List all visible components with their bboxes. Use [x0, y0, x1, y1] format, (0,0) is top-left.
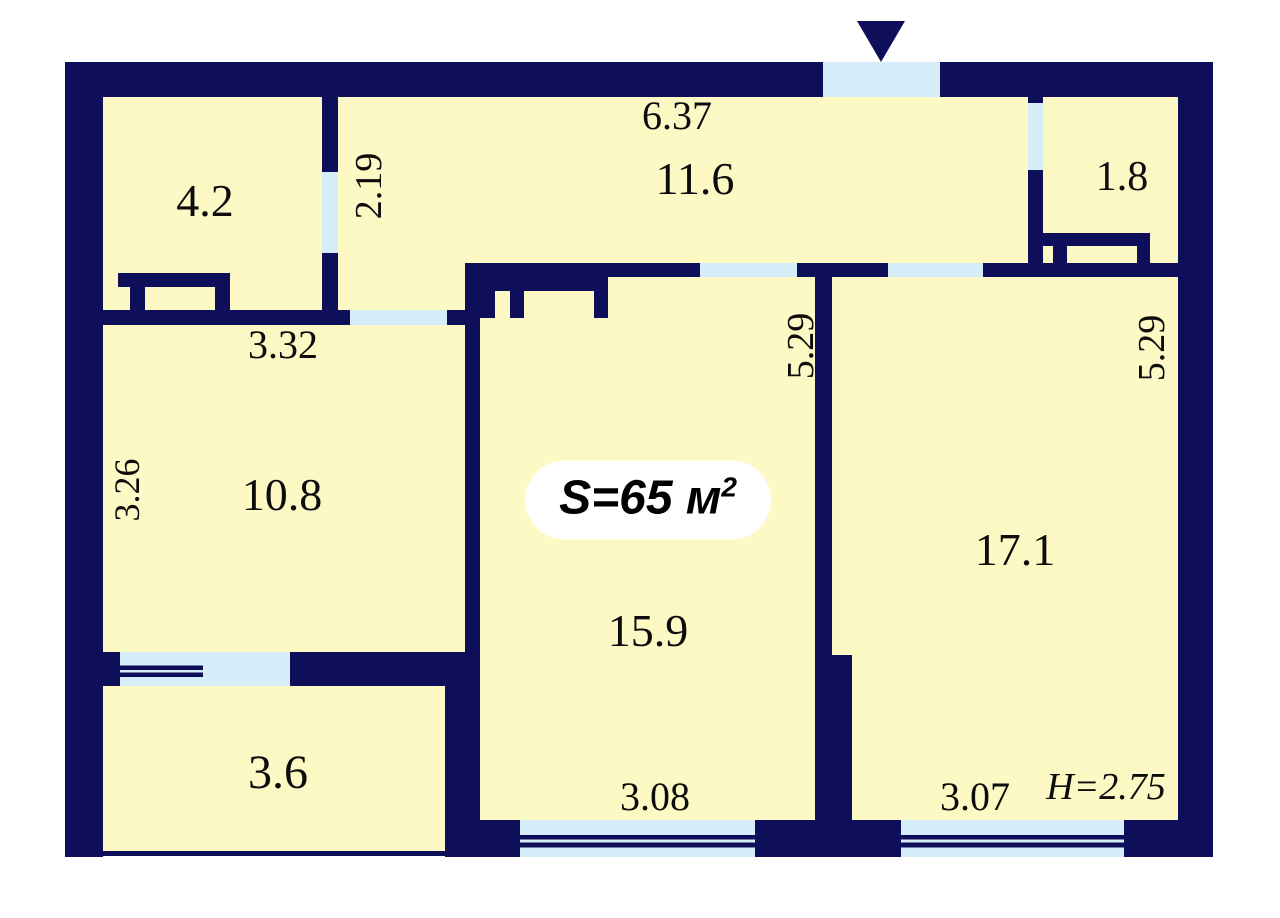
wardrobe-bathroom-leg-2: [215, 287, 230, 311]
balcony-area-label: 3.6: [248, 749, 308, 797]
living-room-window: [520, 820, 755, 857]
wall-hall-bottom-3: [983, 263, 1178, 277]
balcony-door: [203, 652, 290, 686]
hall-area-label: 11.6: [656, 156, 735, 202]
living-area-label: 15.9: [608, 608, 689, 654]
bathroom-width-dim: 3.32: [248, 325, 318, 365]
closet-area-label: 1.8: [1096, 156, 1149, 198]
closet-door: [1028, 103, 1043, 170]
wall-hall-bottom-2: [797, 263, 888, 277]
entrance-arrow-icon: [857, 21, 905, 62]
wardrobe-living-leg-1: [480, 291, 495, 318]
hall-width-dim: 6.37: [642, 96, 712, 136]
wardrobe-bathroom-bar: [118, 273, 230, 287]
wardrobe-closet-leg-1: [1053, 246, 1067, 263]
wall-bathroom-right-lower: [322, 253, 338, 310]
wall-kitchen-bottom-2: [290, 652, 445, 686]
living-width-dim: 3.08: [620, 777, 690, 817]
wall-balcony-right: [445, 652, 480, 857]
kitchen-area-label: 10.8: [242, 472, 323, 518]
ceiling-height-label: H=2.75: [1046, 768, 1166, 806]
wardrobe-living-leg-3: [594, 291, 608, 318]
kitchen-window: [120, 652, 203, 686]
wall-bottom-right-corner: [1124, 820, 1213, 857]
wardrobe-closet-bar: [1043, 233, 1150, 246]
wall-living-left: [465, 263, 480, 652]
wardrobe-living-bar: [480, 277, 608, 291]
balcony-bottom-edge: [103, 851, 445, 856]
wall-left: [65, 97, 103, 857]
bedroom-door: [888, 263, 983, 277]
total-area-badge: S=65 м2: [525, 461, 771, 540]
floor-plan: 4.2 11.6 1.8 10.8 15.9 17.1 3.6 6.37 2.1…: [0, 0, 1280, 918]
wall-hall-bottom-1: [465, 263, 700, 277]
wall-closet-left: [1028, 170, 1043, 263]
bedroom-depth-dim: 5.29: [1133, 315, 1171, 382]
bedroom-area-label: 17.1: [975, 527, 1056, 573]
kitchen-depth-dim: 3.26: [109, 459, 145, 522]
wall-kitchen-bottom-1: [103, 652, 120, 686]
wall-top-left: [65, 62, 823, 97]
wall-bathroom-right-upper: [322, 97, 338, 172]
wall-top-right: [940, 62, 1213, 97]
wardrobe-living-leg-2: [510, 291, 524, 318]
bathroom-area-label: 4.2: [176, 178, 234, 224]
bedroom-width-dim: 3.07: [940, 777, 1010, 817]
living-depth-dim: 5.29: [782, 313, 820, 380]
bedroom-window: [901, 820, 1124, 857]
total-area-text: S=65 м: [559, 472, 721, 525]
wardrobe-bathroom-leg-1: [130, 287, 145, 311]
living-room-door: [700, 263, 797, 277]
wall-bottom-b: [755, 820, 901, 857]
wall-right: [1178, 97, 1213, 820]
wardrobe-closet-leg-2: [1137, 246, 1150, 263]
hall-passage-dim: 2.19: [350, 153, 388, 220]
kitchen-door: [350, 310, 447, 325]
bathroom-door: [322, 172, 338, 253]
total-area-superscript: 2: [721, 472, 737, 503]
wall-living-bedroom-lower: [815, 655, 852, 820]
entrance-door: [823, 62, 940, 97]
